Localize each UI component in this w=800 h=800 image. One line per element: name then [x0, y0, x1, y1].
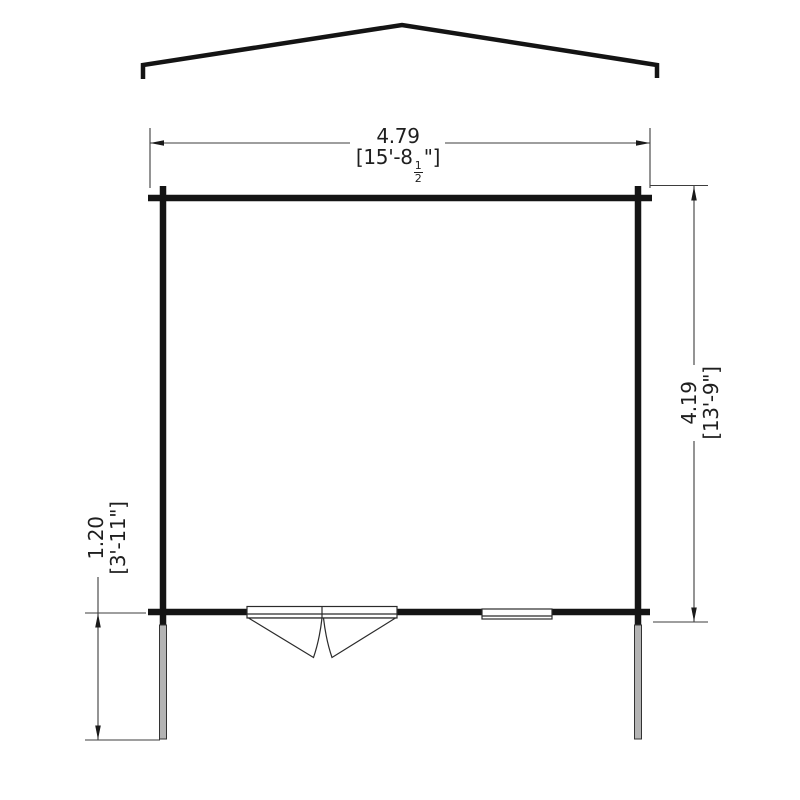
canopy-imperial-value: [3'-11"] [107, 501, 129, 574]
width-imperial-fraction: 12 [414, 160, 423, 184]
width-imperial-suffix: "] [424, 145, 440, 169]
canopy-dimension-label: 1.20 [3'-11"] [85, 501, 129, 574]
width-imperial-prefix: [15'-8 [356, 145, 413, 169]
post-left [160, 625, 167, 739]
arrow-down-icon [95, 726, 101, 740]
fraction-numerator: 1 [414, 160, 423, 173]
arrow-up-icon [691, 187, 697, 201]
canopy-dimension-lines [85, 577, 160, 740]
width-dimension-label: 4.79 [15'-812"] [298, 126, 498, 184]
door-leaf-left [249, 618, 323, 658]
depth-imperial-value: [13'-9"] [700, 366, 722, 439]
arrow-up-icon [95, 614, 101, 628]
window-group [482, 609, 552, 619]
double-door-group [247, 607, 397, 658]
depth-dimension-label: 4.19 [13'-9"] [678, 366, 722, 439]
width-imperial-value: [15'-812"] [298, 147, 498, 184]
arrow-right-icon [636, 140, 650, 145]
door-leaf-right [324, 618, 396, 658]
canopy-metric-value: 1.20 [85, 501, 107, 574]
arrow-left-icon [150, 140, 164, 145]
fraction-denominator: 2 [415, 173, 422, 185]
depth-metric-value: 4.19 [678, 366, 700, 439]
window [482, 609, 552, 619]
roof-outline [143, 25, 657, 79]
walls-group [148, 186, 652, 625]
post-right [635, 625, 642, 739]
floor-plan-page: 4.79 [15'-812"] 4.19 [13'-9"] 1.20 [3'-1… [0, 0, 800, 800]
width-metric-value: 4.79 [298, 126, 498, 147]
arrow-down-icon [691, 608, 697, 622]
